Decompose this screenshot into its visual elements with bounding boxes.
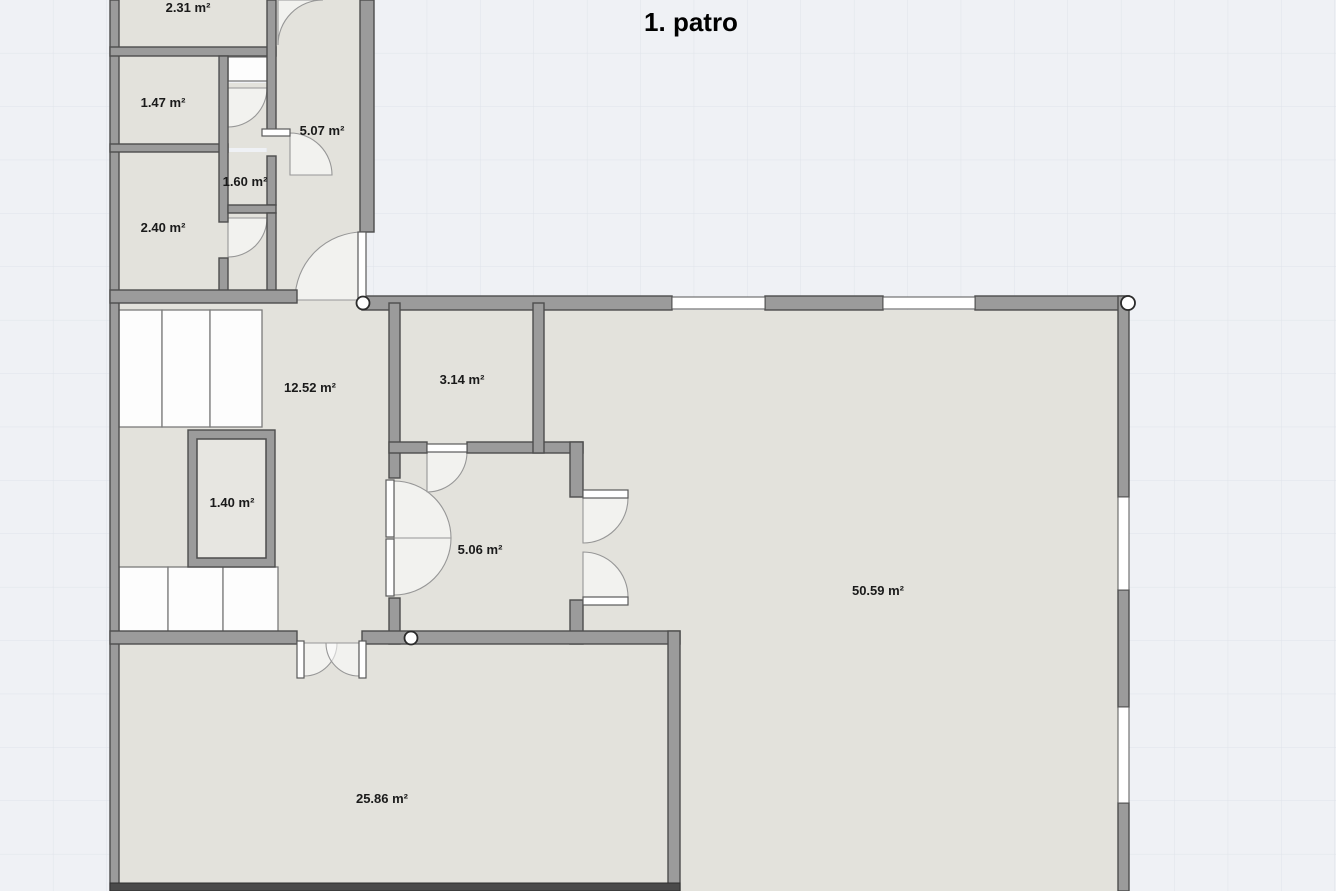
door-leaf[interactable] <box>583 490 628 498</box>
wall[interactable] <box>110 290 297 303</box>
door-leaf[interactable] <box>386 480 394 537</box>
wall[interactable] <box>110 144 228 152</box>
door-leaf[interactable] <box>386 539 394 596</box>
wall[interactable] <box>389 442 427 453</box>
wall[interactable] <box>668 631 680 891</box>
floor-title: 1. patro <box>644 7 738 37</box>
wall[interactable] <box>267 156 276 205</box>
room-area-label: 5.07 m² <box>300 123 345 138</box>
cabinet[interactable] <box>223 567 278 640</box>
room-area-label: 50.59 m² <box>852 583 905 598</box>
room-area-label: 3.14 m² <box>440 372 485 387</box>
wall-endpoint-handle[interactable] <box>1121 296 1135 310</box>
room-area-label: 25.86 m² <box>356 791 409 806</box>
wall[interactable] <box>219 56 228 222</box>
wall[interactable] <box>110 631 297 644</box>
room-area-label: 5.06 m² <box>458 542 503 557</box>
window[interactable] <box>883 297 975 309</box>
room-area-label: 12.52 m² <box>284 380 337 395</box>
wall[interactable] <box>362 296 672 310</box>
door-leaf[interactable] <box>358 232 366 300</box>
cabinet[interactable] <box>168 567 223 640</box>
wall-endpoint-handle[interactable] <box>357 297 370 310</box>
wall[interactable] <box>1118 803 1129 891</box>
room-area-label: 1.40 m² <box>210 495 255 510</box>
cabinet[interactable] <box>162 310 210 427</box>
wall[interactable] <box>1118 590 1129 707</box>
wall[interactable] <box>219 258 228 292</box>
cabinet[interactable] <box>210 310 262 427</box>
shaft-box[interactable] <box>228 57 268 81</box>
wall[interactable] <box>1118 296 1129 497</box>
door-leaf[interactable] <box>297 641 304 678</box>
window[interactable] <box>672 297 765 309</box>
door-leaf[interactable] <box>262 129 290 136</box>
wall[interactable] <box>110 0 119 891</box>
door-leaf[interactable] <box>427 444 467 452</box>
window[interactable] <box>1118 497 1129 590</box>
wall[interactable] <box>267 0 276 131</box>
wall[interactable] <box>570 442 583 497</box>
wall[interactable] <box>267 213 276 296</box>
bottom-room-floor[interactable] <box>119 644 668 891</box>
wall[interactable] <box>765 296 883 310</box>
room-area-label: 2.40 m² <box>141 220 186 235</box>
room-area-label: 1.60 m² <box>223 174 268 189</box>
door-leaf[interactable] <box>359 641 366 678</box>
cabinet[interactable] <box>119 310 162 427</box>
wall[interactable] <box>533 303 544 453</box>
wall[interactable] <box>360 0 374 232</box>
wall-endpoint-handle[interactable] <box>405 632 418 645</box>
wall[interactable] <box>228 205 276 213</box>
wall[interactable] <box>975 296 1129 310</box>
room-area-label: 1.47 m² <box>141 95 186 110</box>
floor-plan-canvas[interactable]: 2.31 m² 1.47 m² 5.07 m² 1.60 m² 2.40 m² … <box>0 0 1336 891</box>
cabinet[interactable] <box>119 567 168 640</box>
window[interactable] <box>1118 707 1129 803</box>
wall[interactable] <box>110 883 680 891</box>
room-area-label: 2.31 m² <box>166 0 211 15</box>
wall[interactable] <box>110 47 276 56</box>
door-leaf[interactable] <box>583 597 628 605</box>
wall[interactable] <box>467 442 583 453</box>
